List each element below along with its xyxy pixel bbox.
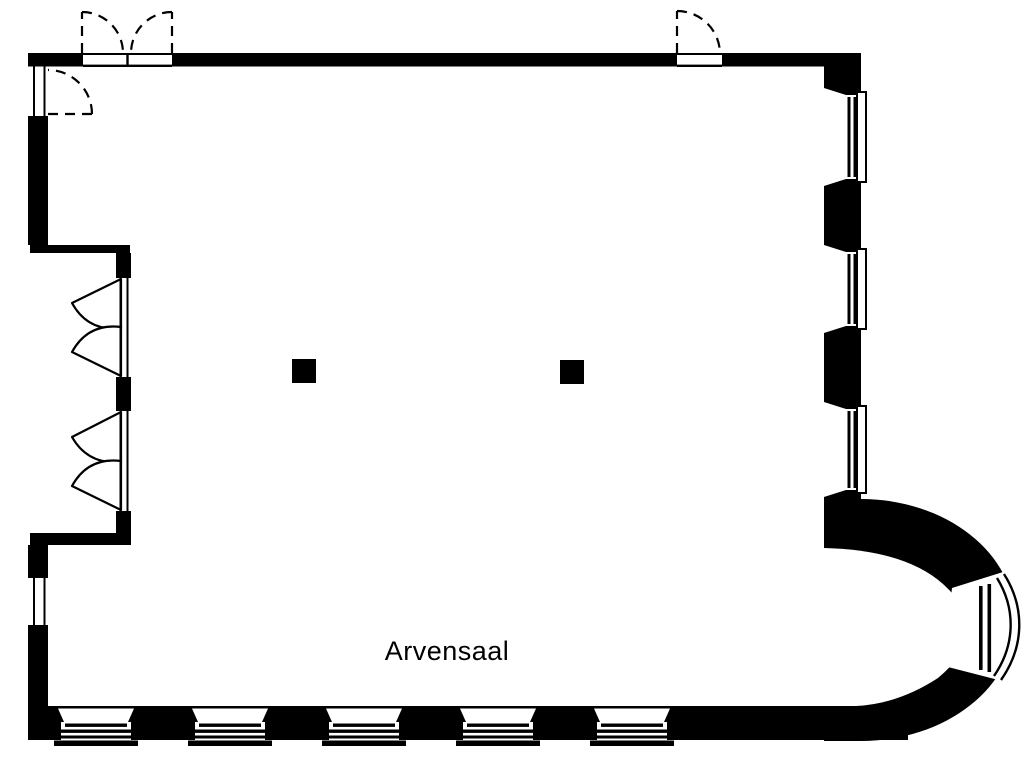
column-left: [292, 359, 316, 383]
door-swing-arc-left: [82, 12, 123, 53]
glazing-line: [120, 278, 122, 377]
bay-window-frame-line: [979, 586, 983, 670]
right-window-middle: [824, 245, 866, 333]
bottom-window-1: [54, 709, 138, 747]
glazing-line: [120, 411, 122, 511]
glazing-line: [127, 411, 129, 511]
room-label: Arvensaal: [337, 636, 557, 667]
mullion-post: [116, 377, 131, 411]
mullion-post: [116, 253, 131, 278]
bay-window-frame-line: [988, 584, 992, 672]
left-casement-wall: [72, 253, 131, 545]
casement-leaf-2: [72, 327, 121, 376]
bottom-window-2: [188, 709, 272, 747]
bottom-window-5: [590, 709, 674, 747]
right-window-bottom: [824, 402, 866, 497]
glazing-line: [127, 278, 129, 377]
casement-leaf-4: [72, 461, 121, 510]
door-meeting-stile: [126, 53, 128, 67]
single-swing-door-top-right: [677, 11, 722, 67]
casement-leaf-1: [72, 279, 121, 328]
column-right: [560, 360, 584, 384]
casement-leaf-3: [72, 412, 121, 462]
floor-plan: Arvensaal: [0, 0, 1024, 781]
single-swing-door-left: [28, 67, 92, 117]
door-swing-arc: [677, 11, 720, 53]
bottom-window-3: [322, 709, 406, 747]
door-swing-arc: [48, 70, 92, 114]
columns: [292, 359, 584, 384]
double-swing-door-top-left: [82, 12, 172, 67]
mullion-post: [116, 511, 131, 545]
door-swing-arc-right: [131, 12, 172, 53]
bottom-window-4: [456, 709, 540, 747]
right-window-top: [824, 88, 866, 186]
left-window: [28, 578, 48, 625]
